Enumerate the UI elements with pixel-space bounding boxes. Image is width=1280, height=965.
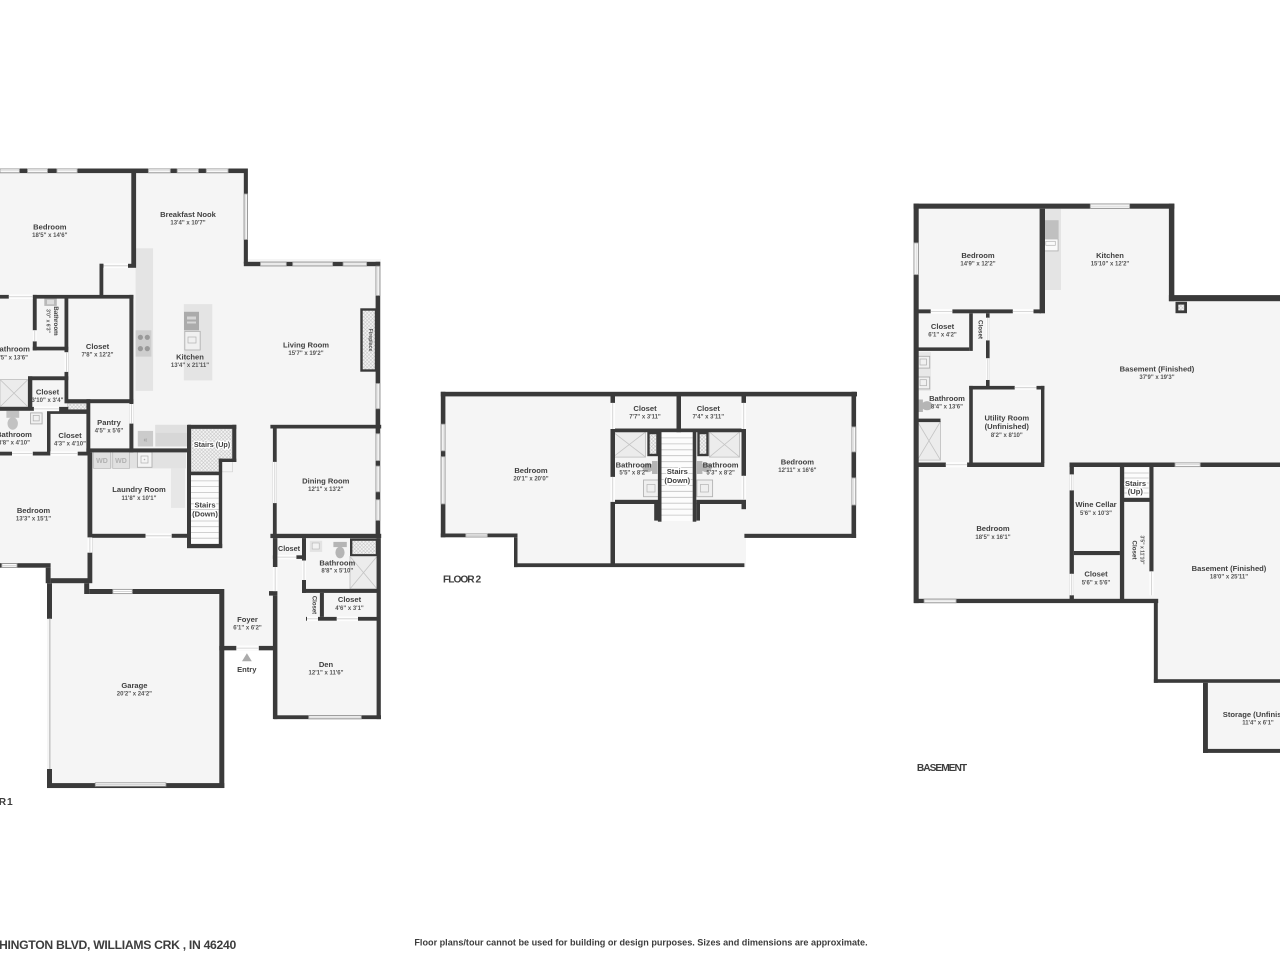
svg-text:11'4" x 6'1": 11'4" x 6'1" xyxy=(1242,721,1274,727)
svg-text:13'4" x 10'7": 13'4" x 10'7" xyxy=(170,221,205,227)
svg-text:(Down): (Down) xyxy=(192,510,218,519)
svg-text:11'8" x 10'1": 11'8" x 10'1" xyxy=(122,496,157,502)
svg-text:8'2" x 8'10": 8'2" x 8'10" xyxy=(991,433,1023,439)
svg-text:Bedroom: Bedroom xyxy=(976,524,1010,533)
svg-text:Stairs (Up): Stairs (Up) xyxy=(194,440,231,449)
svg-text:Stairs: Stairs xyxy=(667,467,688,476)
svg-text:Basement (Finished): Basement (Finished) xyxy=(1120,365,1195,374)
svg-text:7'7" x 3'11": 7'7" x 3'11" xyxy=(629,415,661,421)
svg-text:Closet: Closet xyxy=(36,388,60,397)
svg-text:4'6" x 3'1": 4'6" x 3'1" xyxy=(335,606,364,612)
svg-text:WD: WD xyxy=(115,458,127,465)
svg-text:Bedroom: Bedroom xyxy=(514,466,548,475)
svg-text:12'11" x 16'6": 12'11" x 16'6" xyxy=(778,468,816,474)
svg-text:Stairs: Stairs xyxy=(194,501,215,510)
svg-text:Living Room: Living Room xyxy=(283,341,329,350)
svg-text:Bathroom: Bathroom xyxy=(319,559,355,568)
svg-text:12'1" x 13'2": 12'1" x 13'2" xyxy=(308,487,343,493)
svg-text:Bedroom: Bedroom xyxy=(961,251,995,260)
svg-text:7'4" x 3'11": 7'4" x 3'11" xyxy=(693,415,725,421)
svg-text:7'8" x 12'2": 7'8" x 12'2" xyxy=(82,353,114,359)
svg-text:Kitchen: Kitchen xyxy=(1096,251,1124,260)
svg-text:Breakfast Nook: Breakfast Nook xyxy=(160,210,216,219)
svg-text:Floor plans/tour cannot be use: Floor plans/tour cannot be used for buil… xyxy=(414,938,867,948)
svg-text:(Up): (Up) xyxy=(1128,487,1144,496)
svg-text:15'7" x 19'2": 15'7" x 19'2" xyxy=(288,351,323,357)
svg-text:Storage (Unfinished): Storage (Unfinished) xyxy=(1223,710,1280,719)
svg-text:20'1" x 20'0": 20'1" x 20'0" xyxy=(513,477,548,483)
svg-text:«: « xyxy=(143,437,147,444)
svg-text:BASEMENT: BASEMENT xyxy=(917,763,968,774)
svg-text:8'8" x 4'10": 8'8" x 4'10" xyxy=(0,441,30,447)
svg-text:Laundry Room: Laundry Room xyxy=(112,485,166,494)
svg-text:Pantry: Pantry xyxy=(97,418,121,427)
svg-text:Bedroom: Bedroom xyxy=(33,223,67,232)
svg-text:Kitchen: Kitchen xyxy=(176,353,204,362)
svg-text:4'5" x 5'6": 4'5" x 5'6" xyxy=(95,429,124,435)
svg-text:Closet: Closet xyxy=(931,322,955,331)
svg-text:Bathroom: Bathroom xyxy=(703,461,739,470)
svg-text:12'1" x 11'6": 12'1" x 11'6" xyxy=(309,671,344,677)
svg-text:HINGTON BLVD, WILLIAMS CRK , I: HINGTON BLVD, WILLIAMS CRK , IN 46240 xyxy=(0,938,236,952)
svg-text:6'1" x 4'2": 6'1" x 4'2" xyxy=(928,333,957,339)
svg-text:Closet: Closet xyxy=(278,544,301,553)
svg-text:Den: Den xyxy=(319,660,334,669)
svg-text:18'5" x 14'6": 18'5" x 14'6" xyxy=(32,233,67,239)
svg-text:Closet: Closet xyxy=(310,596,316,614)
svg-text:5'5" x 8'2": 5'5" x 8'2" xyxy=(619,471,648,477)
svg-text:4'3" x 4'10": 4'3" x 4'10" xyxy=(54,442,86,448)
svg-text:Garage: Garage xyxy=(121,681,147,690)
svg-text:(Unfinished): (Unfinished) xyxy=(985,422,1030,431)
svg-text:5'6" x 10'3": 5'6" x 10'3" xyxy=(1080,511,1112,517)
svg-text:15'10" x 12'2": 15'10" x 12'2" xyxy=(1091,262,1130,268)
svg-text:6'1" x 6'2": 6'1" x 6'2" xyxy=(233,626,262,632)
svg-text:13'4" x 21'11": 13'4" x 21'11" xyxy=(171,363,209,369)
svg-text:Bathroom: Bathroom xyxy=(0,430,32,439)
svg-text:5'3" x 8'2": 5'3" x 8'2" xyxy=(706,471,735,477)
svg-text:20'2" x 24'2": 20'2" x 24'2" xyxy=(117,692,152,698)
svg-text:Closet: Closet xyxy=(1131,541,1138,560)
svg-text:Fireplace: Fireplace xyxy=(367,329,373,352)
svg-text:37'9" x 19'3": 37'9" x 19'3" xyxy=(1139,375,1174,381)
svg-text:Wine Cellar: Wine Cellar xyxy=(1075,500,1116,509)
svg-text:Foyer: Foyer xyxy=(237,615,258,624)
svg-text:Bathroom: Bathroom xyxy=(52,306,59,336)
svg-text:3'0" x 6'3": 3'0" x 6'3" xyxy=(45,309,51,333)
svg-text:Closet: Closet xyxy=(977,320,984,339)
svg-text:Bedroom: Bedroom xyxy=(781,458,815,467)
svg-text:9'5" x 13'6": 9'5" x 13'6" xyxy=(0,356,28,362)
svg-text:Bedroom: Bedroom xyxy=(17,506,51,515)
svg-text:Closet: Closet xyxy=(58,431,82,440)
svg-text:Dining Room: Dining Room xyxy=(302,477,349,486)
svg-text:3'10" x 3'4": 3'10" x 3'4" xyxy=(32,398,64,404)
svg-text:Closet: Closet xyxy=(697,404,721,413)
svg-text:13'3" x 15'1": 13'3" x 15'1" xyxy=(16,517,51,523)
svg-text:14'9" x 12'2": 14'9" x 12'2" xyxy=(960,262,995,268)
svg-text:Bathroom: Bathroom xyxy=(616,461,652,470)
svg-text:Closet: Closet xyxy=(338,595,362,604)
svg-text:8'4" x 13'6": 8'4" x 13'6" xyxy=(931,405,963,411)
svg-text:FLOOR 1: FLOOR 1 xyxy=(0,797,13,808)
svg-text:Closet: Closet xyxy=(86,342,110,351)
svg-text:3'5" x 11'10": 3'5" x 11'10" xyxy=(1139,535,1145,565)
svg-text:8'8" x 5'10": 8'8" x 5'10" xyxy=(321,569,353,575)
svg-text:Entry: Entry xyxy=(237,665,257,674)
svg-text:WD: WD xyxy=(96,458,108,465)
svg-text:(Down): (Down) xyxy=(664,476,690,485)
svg-text:Closet: Closet xyxy=(1084,570,1108,579)
svg-text:Closet: Closet xyxy=(633,404,657,413)
svg-text:18'0" x 25'11": 18'0" x 25'11" xyxy=(1210,575,1248,581)
svg-text:Bathroom: Bathroom xyxy=(929,394,965,403)
svg-text:5'6" x 5'6": 5'6" x 5'6" xyxy=(1082,581,1111,587)
svg-text:Basement (Finished): Basement (Finished) xyxy=(1192,564,1267,573)
svg-text:18'5" x 16'1": 18'5" x 16'1" xyxy=(975,535,1010,541)
svg-text:Bathroom: Bathroom xyxy=(0,345,30,354)
svg-text:FLOOR 2: FLOOR 2 xyxy=(443,575,481,586)
